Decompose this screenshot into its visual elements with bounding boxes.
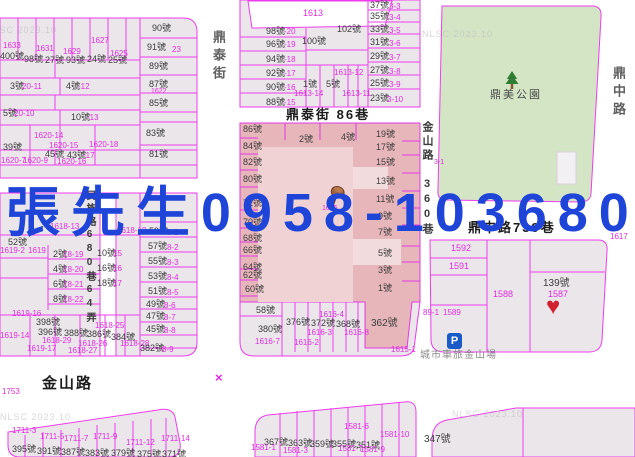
park-tree-icon bbox=[504, 71, 520, 91]
hospital-heart-icon[interactable]: ♥ bbox=[546, 295, 560, 319]
location-pin-icon[interactable] bbox=[326, 184, 348, 210]
map-canvas[interactable]: NLSC 2023.10NLSC 2023.10NLSC 2023.10NLSC… bbox=[0, 0, 635, 457]
parcel-lines-layer bbox=[0, 0, 635, 457]
parking-icon[interactable]: P bbox=[447, 333, 462, 349]
